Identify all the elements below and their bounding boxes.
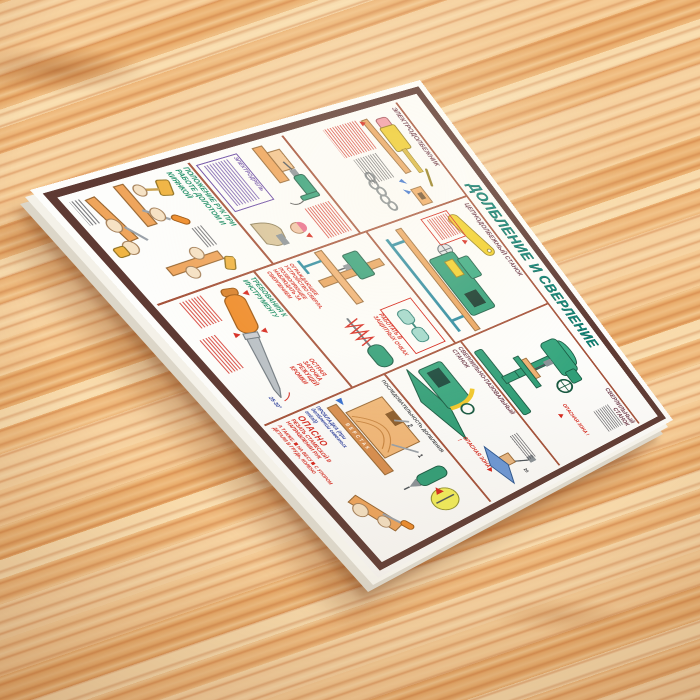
clamp-diagram-icon [478, 432, 543, 487]
photo-scene: ДОЛБЛЕНИЕ И СВЕРЛЕНИЕ ЭЛЕКТРОДОЛБЕЖНИК [0, 0, 700, 700]
